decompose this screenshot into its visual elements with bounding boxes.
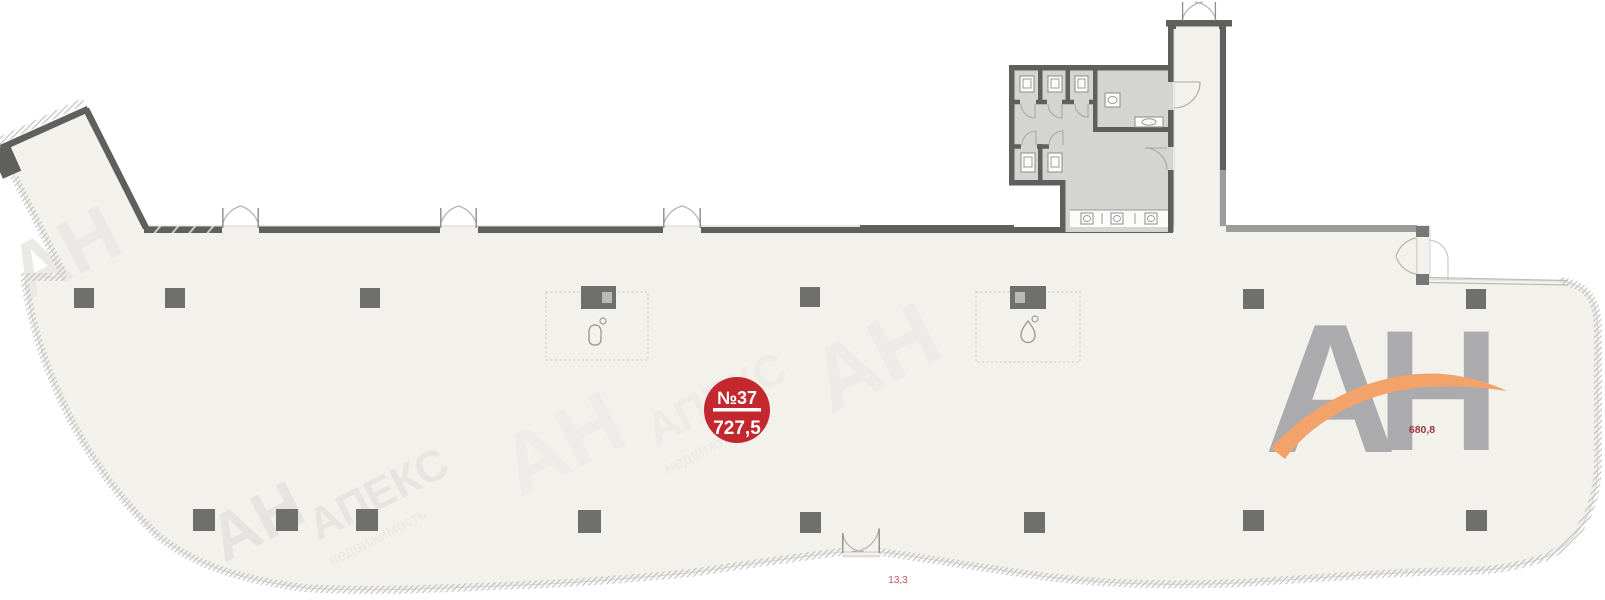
svg-text:680,8: 680,8 — [1409, 424, 1435, 436]
svg-text:13,3: 13,3 — [888, 575, 908, 586]
svg-text:727,5: 727,5 — [713, 418, 761, 439]
svg-text:№37: №37 — [717, 388, 757, 408]
